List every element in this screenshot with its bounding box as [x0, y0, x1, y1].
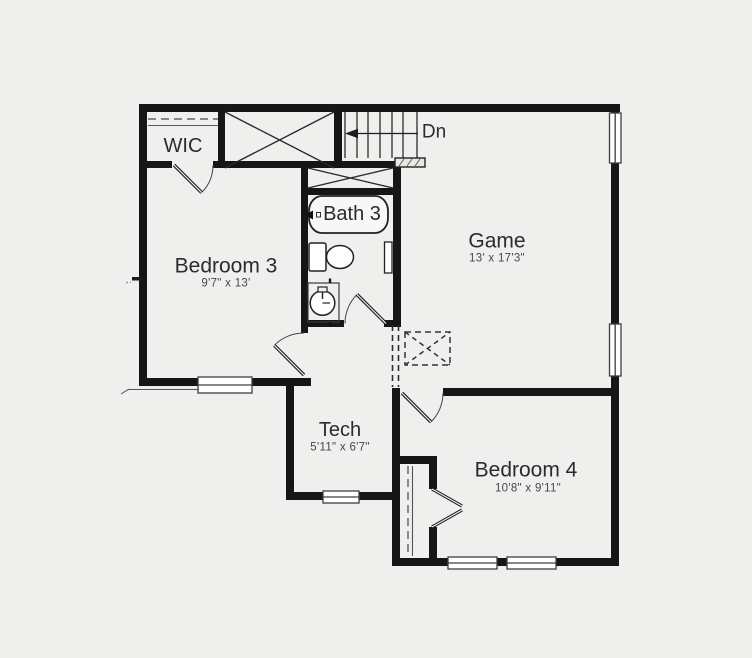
attic-access-dashed-box	[405, 332, 450, 365]
window	[507, 557, 556, 569]
floor-plan-drawing	[0, 0, 752, 653]
wall-closet4-jamb-lower	[429, 527, 437, 558]
toilet-icon	[309, 243, 354, 271]
room-dims-game: 13' x 17'3"	[469, 253, 525, 265]
room-label-bedroom4: Bedroom 4	[475, 460, 578, 481]
door-swing-bedroom3	[274, 333, 304, 375]
room-label-tech: Tech	[319, 420, 361, 440]
window	[198, 377, 252, 393]
roof-line	[121, 389, 199, 394]
wall-bedroom4-west	[392, 388, 400, 566]
window	[448, 557, 497, 569]
bath-wall-niche	[385, 242, 393, 273]
window	[323, 491, 359, 503]
wall-left	[139, 104, 147, 386]
closet4-double-doors	[432, 489, 462, 527]
stair-direction-label: Dn	[422, 123, 446, 142]
wall-tech-west	[286, 378, 294, 500]
window	[610, 324, 622, 376]
windows	[198, 113, 621, 569]
room-dims-bedroom4: 10'8" x 9'11"	[495, 483, 561, 495]
room-label-bath3: Bath 3	[323, 204, 381, 224]
wall-stair-west	[334, 110, 342, 168]
room-dims-bedroom3: 9'7" x 13'	[201, 278, 250, 290]
cased-opening-dashed	[393, 325, 399, 387]
walls	[139, 104, 620, 566]
sink-icon	[308, 279, 339, 327]
wall-top	[139, 104, 620, 112]
wall-closet4-jamb-upper	[429, 456, 437, 489]
door-swing-wic	[174, 165, 213, 193]
room-label-bedroom3: Bedroom 3	[175, 256, 278, 277]
floor-plan: WIC Bedroom 3 9'7" x 13' Bath 3 Game 13'…	[0, 0, 752, 653]
utility-mark	[126, 277, 141, 283]
stair-railing	[395, 158, 425, 167]
window	[610, 113, 622, 163]
wall-wic-east	[218, 110, 225, 168]
linen-x-box	[308, 168, 393, 188]
wall-linen-south	[301, 188, 401, 195]
wall-bath-east	[393, 161, 401, 323]
room-label-game: Game	[468, 231, 525, 252]
door-swing-bath3	[345, 295, 386, 324]
closet-x-box	[225, 112, 334, 168]
stair-down-arrow	[345, 129, 418, 138]
room-label-wic: WIC	[164, 136, 203, 156]
room-dims-tech: 5'11" x 6'7"	[310, 442, 369, 454]
door-swing-bedroom4	[402, 393, 443, 422]
wall-game-south	[443, 388, 611, 396]
wall-bath-west	[301, 161, 308, 333]
wic-shelf-rod	[148, 119, 218, 126]
wall-bedroom4-south	[392, 558, 619, 566]
wall-wic-south	[139, 161, 172, 168]
closet4-shelf-rod	[408, 466, 413, 556]
